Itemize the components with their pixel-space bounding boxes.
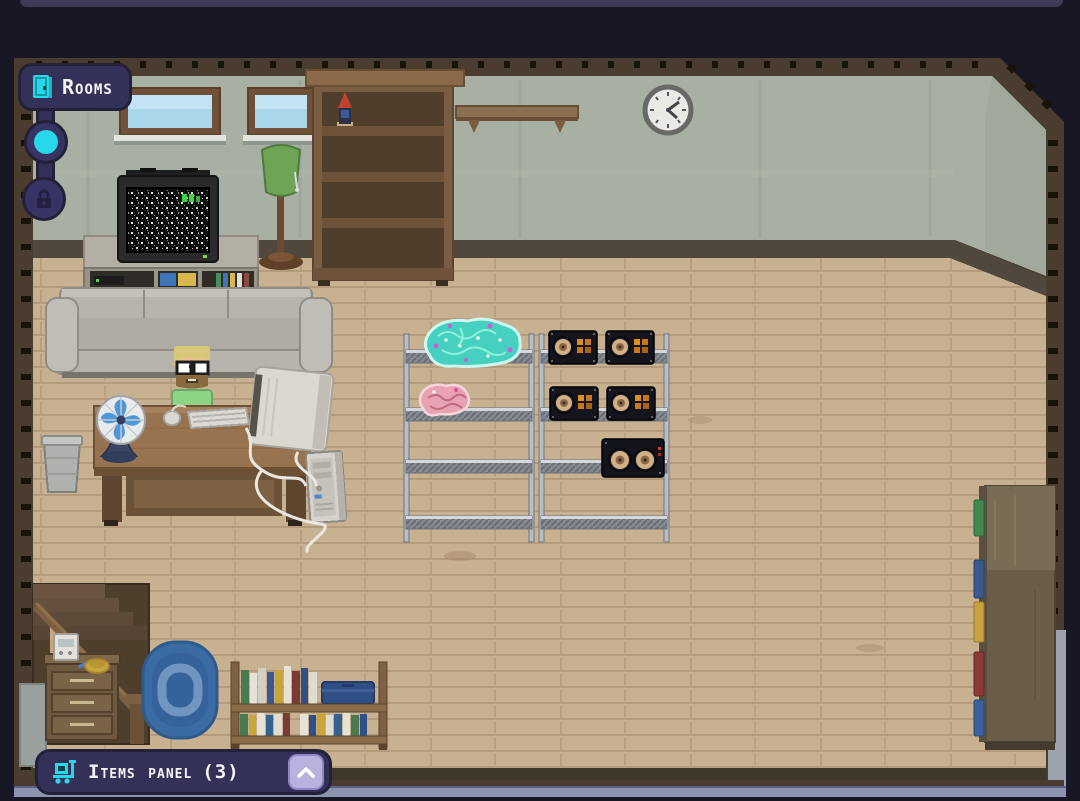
crt-monitor[interactable] <box>248 366 334 452</box>
room-node-locked[interactable] <box>22 177 66 221</box>
game-viewport: Rooms Items panel (3) <box>0 0 1080 801</box>
items-panel-count: (3) <box>202 763 239 782</box>
bowl[interactable] <box>85 659 109 673</box>
items-panel[interactable]: Items panel (3) <box>35 749 332 795</box>
radio[interactable] <box>54 634 78 660</box>
teal-brain[interactable] <box>425 319 520 366</box>
trash-bin[interactable] <box>42 436 82 492</box>
items-panel-label: Items panel <box>88 763 192 782</box>
door-icon <box>31 74 53 100</box>
speaker-4[interactable] <box>607 387 655 420</box>
window-right[interactable] <box>243 88 319 145</box>
room-node-current[interactable] <box>24 120 68 164</box>
blue-case[interactable] <box>322 682 374 704</box>
lock-icon <box>33 188 55 210</box>
speaker-1[interactable] <box>549 331 597 364</box>
speaker-2[interactable] <box>606 331 654 364</box>
cabinet-book-spines <box>974 500 984 736</box>
character[interactable] <box>172 346 212 408</box>
crt-tv[interactable] <box>118 168 218 262</box>
tall-bookshelf[interactable] <box>306 70 464 286</box>
collapse-items-panel-button[interactable] <box>288 754 324 790</box>
current-room-indicator <box>34 130 58 154</box>
books-bottom-row <box>240 713 367 736</box>
chevron-up-icon <box>297 766 315 778</box>
speaker-3[interactable] <box>550 387 598 420</box>
double-speaker[interactable] <box>602 439 664 477</box>
keyboard[interactable] <box>188 408 249 428</box>
room-scene <box>0 0 1080 801</box>
wall-clock[interactable] <box>645 87 691 133</box>
side-cabinet[interactable] <box>974 486 1055 750</box>
rug[interactable] <box>143 642 217 738</box>
rooms-button[interactable]: Rooms <box>18 63 132 111</box>
pc-tower[interactable] <box>306 451 347 523</box>
cart-icon <box>52 759 78 785</box>
pink-brain[interactable] <box>420 385 469 416</box>
rooms-button-label: Rooms <box>62 77 113 97</box>
